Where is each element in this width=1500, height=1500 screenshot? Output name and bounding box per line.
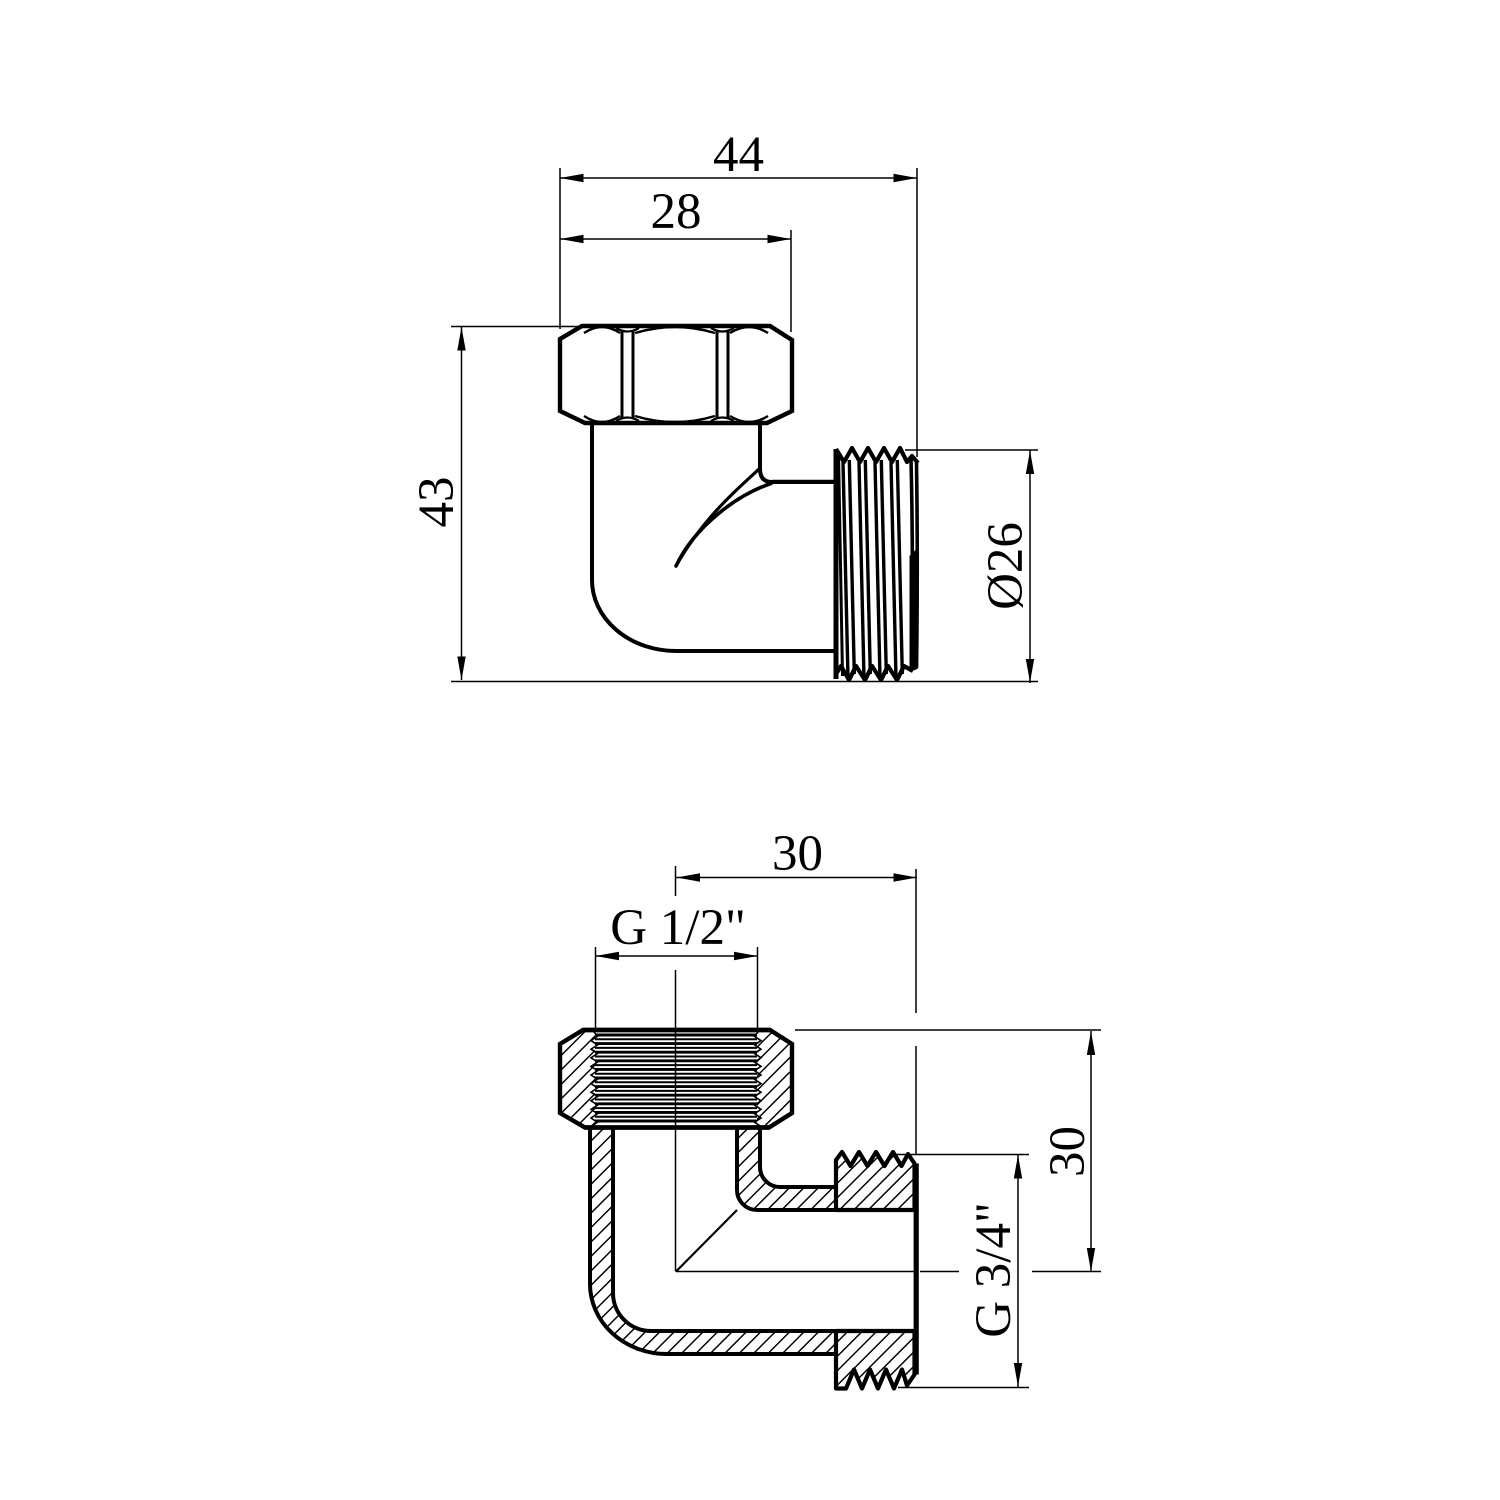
svg-text:44: 44: [713, 127, 764, 183]
svg-text:30: 30: [772, 826, 823, 882]
svg-text:G 1/2": G 1/2": [610, 900, 746, 956]
svg-text:G 3/4": G 3/4": [966, 1202, 1022, 1338]
svg-text:28: 28: [651, 184, 702, 240]
svg-text:30: 30: [1040, 1126, 1096, 1177]
svg-text:43: 43: [409, 477, 465, 528]
svg-text:Ø26: Ø26: [978, 522, 1034, 610]
